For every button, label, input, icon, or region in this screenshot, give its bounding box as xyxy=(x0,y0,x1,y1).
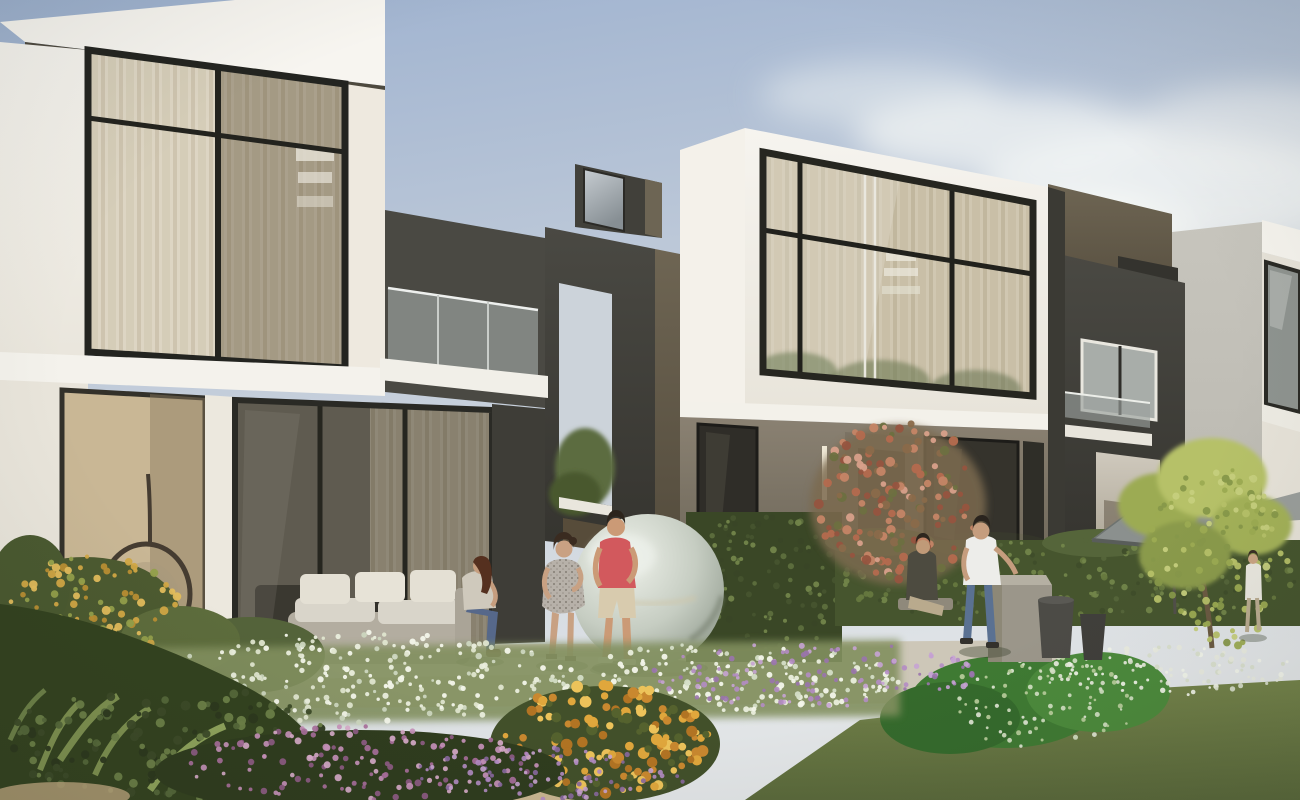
townhouse-render: Architectural rendering: row of modern t… xyxy=(0,0,1300,800)
vignette xyxy=(0,0,1300,800)
render-image-stage: Architectural rendering: row of modern t… xyxy=(0,0,1300,800)
